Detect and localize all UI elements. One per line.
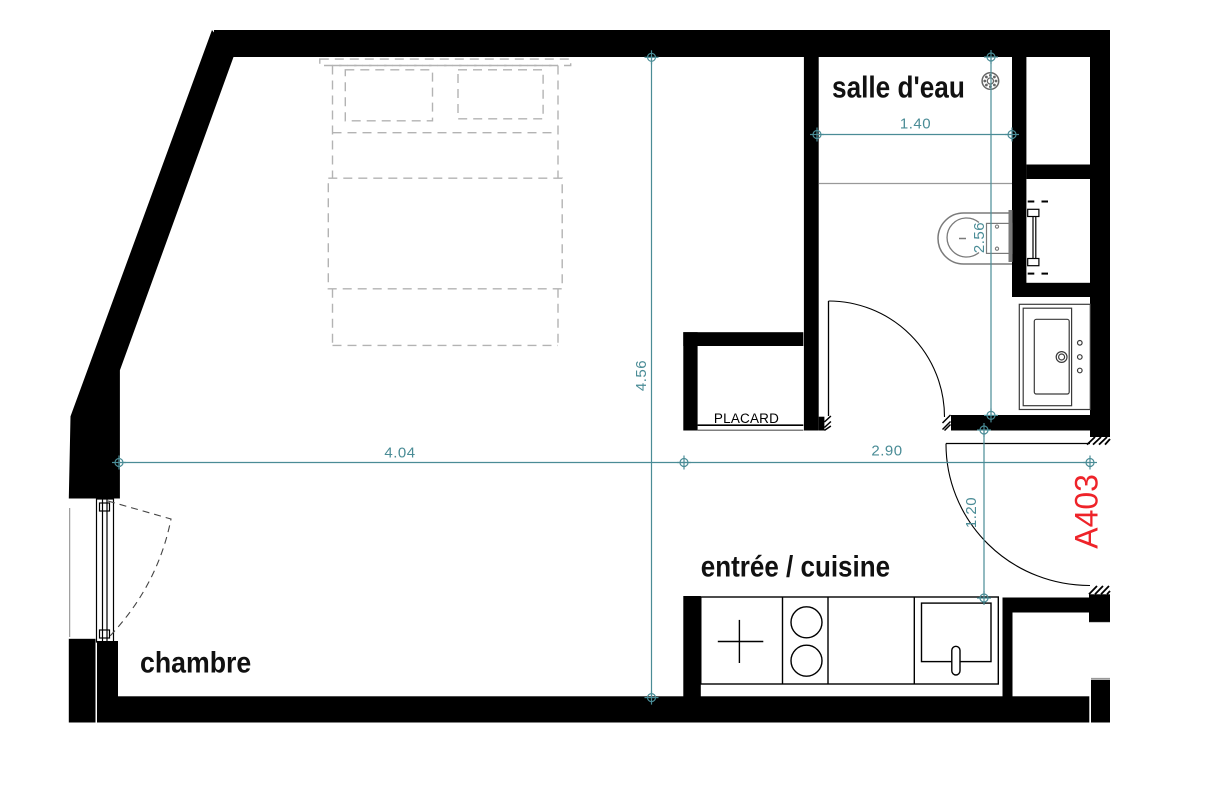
svg-text:2.90: 2.90 xyxy=(871,443,902,460)
svg-text:4.04: 4.04 xyxy=(384,445,415,462)
svg-text:2.56: 2.56 xyxy=(971,222,988,253)
svg-text:chambre: chambre xyxy=(140,646,251,680)
svg-text:salle d'eau: salle d'eau xyxy=(832,71,965,106)
svg-text:1.20: 1.20 xyxy=(963,497,980,528)
svg-text:entrée / cuisine: entrée / cuisine xyxy=(701,550,890,583)
svg-text:PLACARD: PLACARD xyxy=(714,411,779,426)
svg-text:A403: A403 xyxy=(1069,474,1105,549)
svg-text:1.40: 1.40 xyxy=(900,116,931,133)
svg-text:4.56: 4.56 xyxy=(633,360,650,391)
